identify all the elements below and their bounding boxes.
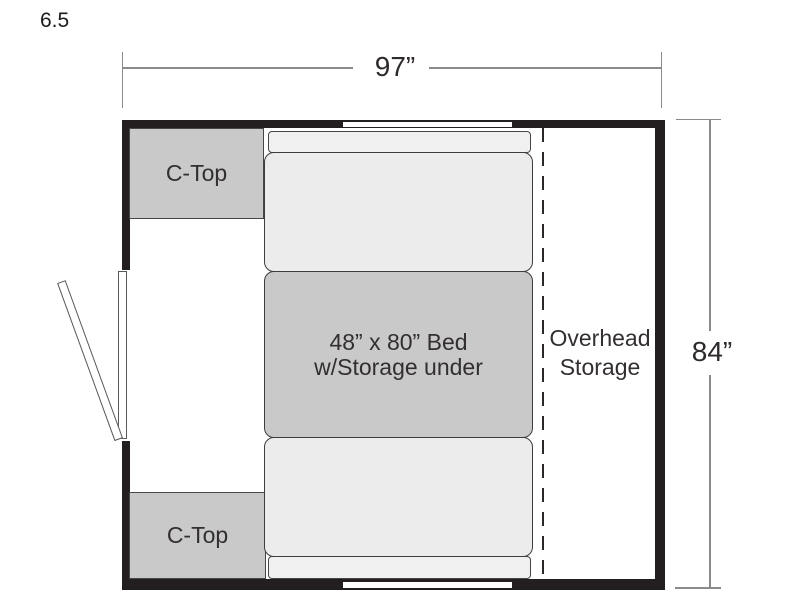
bed: 48” x 80” Bed w/Storage under <box>264 271 533 438</box>
bottom-window <box>343 582 512 588</box>
countertop-upper-label: C-Top <box>166 160 227 187</box>
width-dimension-line-left <box>122 67 353 69</box>
bed-label-line1: 48” x 80” Bed <box>329 330 467 355</box>
overhead-storage-label-line1: Overhead <box>543 324 657 353</box>
height-dimension-tick-top <box>676 119 721 121</box>
countertop-lower: C-Top <box>129 492 266 579</box>
width-dimension-tick-left <box>122 52 124 108</box>
overhead-storage-label-line2: Storage <box>543 353 657 382</box>
countertop-lower-label: C-Top <box>167 522 228 549</box>
width-dimension-tick-right <box>661 52 663 108</box>
countertop-upper: C-Top <box>129 128 264 219</box>
bed-foot-strip <box>268 556 531 579</box>
width-dimension-line-right <box>429 67 662 69</box>
height-dimension-tick-bottom <box>675 587 721 589</box>
bed-label-line2: w/Storage under <box>314 355 483 380</box>
top-window <box>343 122 512 128</box>
bed-cushion-top <box>264 152 533 272</box>
height-dimension-label: 84” <box>680 337 744 367</box>
entry-door-panel <box>118 271 127 439</box>
height-dimension-line-top <box>709 119 711 331</box>
bed-head-strip <box>268 131 531 153</box>
entry-door-open-panel <box>57 280 123 441</box>
floorplan-canvas: 6.5 97” 84” C-Top C-Top 48” x 80” Bed w/… <box>0 0 800 600</box>
height-dimension-line-bottom <box>709 375 711 588</box>
model-label: 6.5 <box>40 9 69 33</box>
bed-cushion-bottom <box>264 437 533 557</box>
width-dimension-label: 97” <box>347 52 443 82</box>
overhead-storage-label: Overhead Storage <box>543 324 657 382</box>
